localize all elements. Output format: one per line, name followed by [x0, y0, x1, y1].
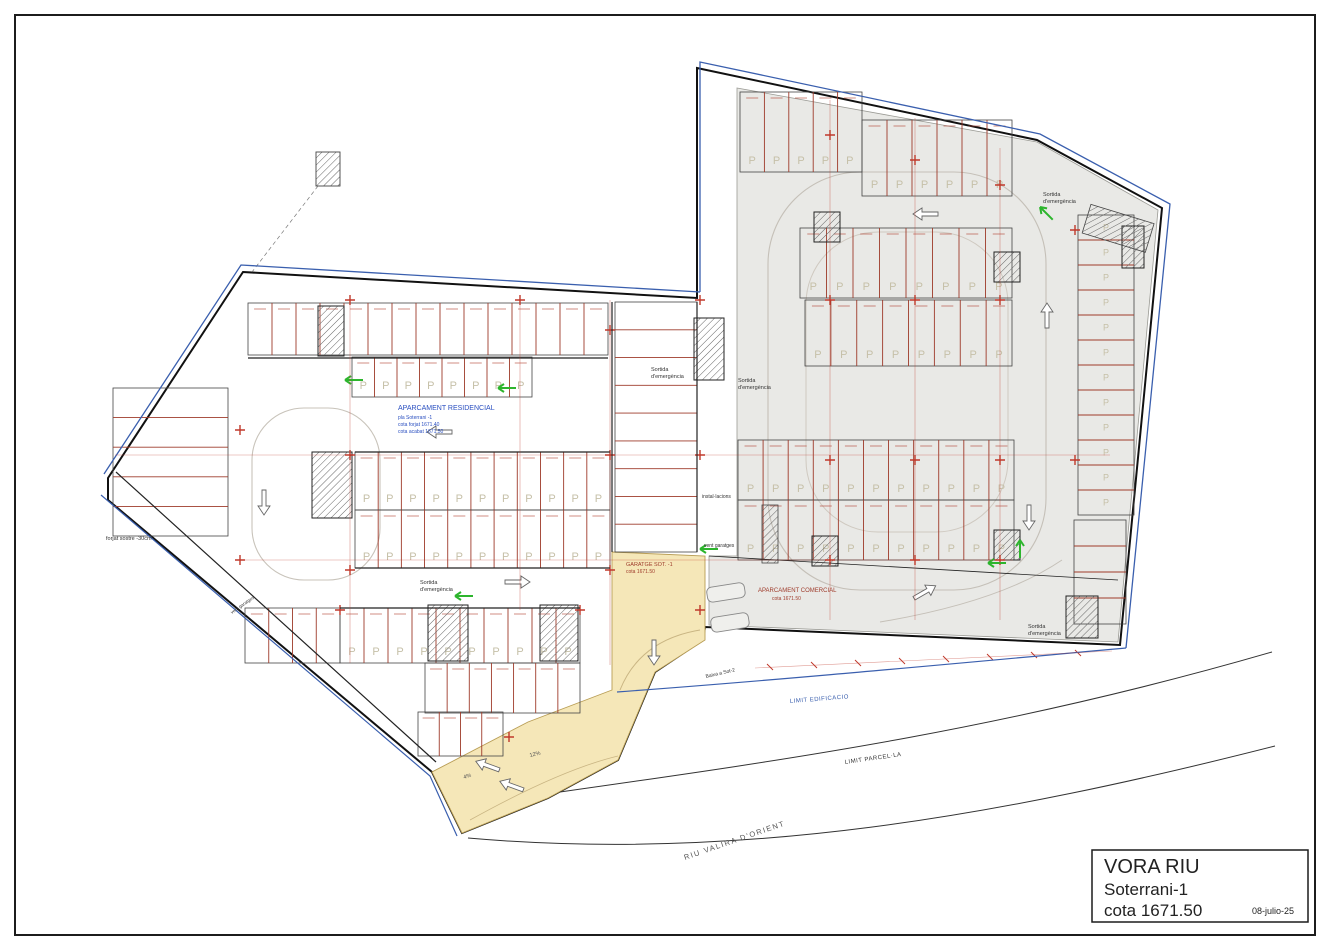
- emergency-exit-label: d'emergència: [651, 374, 685, 380]
- stall-p-marker: P: [517, 380, 524, 392]
- stall-p-marker: P: [946, 179, 953, 191]
- stall-p-marker: P: [749, 155, 756, 167]
- stall-p-marker: P: [1103, 473, 1109, 483]
- date-label: 08-julio-25: [1252, 906, 1294, 916]
- stall-p-marker: P: [897, 543, 904, 555]
- stair-core: [318, 306, 344, 356]
- stall-p-marker: P: [847, 543, 854, 555]
- garage-sub1: cota 1671.50: [626, 569, 655, 575]
- stall-p-marker: P: [348, 646, 355, 658]
- emergency-exit-label: Sortida: [420, 580, 438, 586]
- stall-p-marker: P: [548, 493, 555, 505]
- stall-p-marker: P: [973, 483, 980, 495]
- level-name: Soterrani-1: [1104, 880, 1188, 899]
- stall-p-marker: P: [872, 483, 879, 495]
- stair-core: [812, 536, 838, 566]
- building-limit-line: [617, 648, 1126, 692]
- stall-p-marker: P: [386, 551, 393, 563]
- stall-p-marker: P: [921, 179, 928, 191]
- stall-p-marker: P: [1103, 248, 1109, 258]
- stair-core: [694, 318, 724, 380]
- stall-p-marker: P: [1103, 398, 1109, 408]
- stall-p-marker: P: [427, 380, 434, 392]
- emergency-exit-label: Sortida: [1028, 624, 1046, 630]
- stall-p-marker: P: [810, 281, 817, 293]
- stall-p-marker: P: [846, 155, 853, 167]
- stall-p-marker: P: [892, 349, 899, 361]
- stall-p-marker: P: [822, 483, 829, 495]
- plan-sheet: PPPPPPPPPPPPPPPPPPPPPPPPPPPPPPPPPPPPPPPP…: [0, 0, 1330, 950]
- stall-p-marker: P: [948, 483, 955, 495]
- building-limit-label: LIMIT EDIFICACIO: [790, 694, 850, 705]
- stall-p-marker: P: [479, 493, 486, 505]
- stall-p-marker: P: [889, 281, 896, 293]
- stall-p-marker: P: [896, 179, 903, 191]
- stall-p-marker: P: [998, 483, 1005, 495]
- parcel-limit-curve: [560, 652, 1272, 792]
- stall-p-marker: P: [450, 380, 457, 392]
- stall-p-marker: P: [797, 155, 804, 167]
- stall-p-marker: P: [405, 380, 412, 392]
- stall-p-marker: P: [396, 646, 403, 658]
- residential-sub1: pla Soterrani -1: [398, 415, 432, 421]
- stall-p-marker: P: [872, 543, 879, 555]
- stall-p-marker: P: [973, 543, 980, 555]
- stall-p-marker: P: [1103, 448, 1109, 458]
- emergency-exit-label: d'emergència: [738, 385, 772, 391]
- stall-p-marker: P: [948, 543, 955, 555]
- stall-p-marker: P: [863, 281, 870, 293]
- stall-p-marker: P: [944, 349, 951, 361]
- emergency-exit-label: Sortida: [1043, 192, 1061, 198]
- stall-p-marker: P: [492, 646, 499, 658]
- stall-p-marker: P: [1103, 298, 1109, 308]
- stall-p-marker: P: [1103, 373, 1109, 383]
- stall-p-marker: P: [969, 281, 976, 293]
- stall-p-marker: P: [1103, 348, 1109, 358]
- stall-p-marker: P: [420, 646, 427, 658]
- stall-p-marker: P: [836, 281, 843, 293]
- commercial-sub1: cota 1671.50: [772, 596, 801, 602]
- stall-p-marker: P: [456, 493, 463, 505]
- project-name: VORA RIU: [1104, 856, 1200, 878]
- emergency-exit-label: d'emergència: [1043, 199, 1077, 205]
- stall-p-marker: P: [971, 179, 978, 191]
- stall-p-marker: P: [772, 483, 779, 495]
- stall-p-marker: P: [363, 493, 370, 505]
- stall-p-marker: P: [360, 380, 367, 392]
- emergency-exit-label: Sortida: [738, 378, 756, 384]
- stair-core: [428, 605, 468, 661]
- installations-label: instal·lacions: [702, 494, 731, 500]
- stall-p-marker: P: [572, 493, 579, 505]
- stall-p-marker: P: [595, 551, 602, 563]
- stall-p-marker: P: [409, 493, 416, 505]
- stall-p-marker: P: [923, 483, 930, 495]
- stair-core: [814, 212, 840, 242]
- stall-p-marker: P: [382, 380, 389, 392]
- emergency-exit-label: d'emergència: [1028, 631, 1062, 637]
- stall-p-marker: P: [525, 493, 532, 505]
- stall-p-marker: P: [386, 493, 393, 505]
- stall-p-marker: P: [942, 281, 949, 293]
- garage-title: GARATGE SOT. -1: [626, 562, 673, 568]
- commercial-title: APARCAMENT COMERCIAL: [758, 588, 837, 594]
- emergency-exit-label: d'emergència: [420, 587, 454, 593]
- stall-p-marker: P: [847, 483, 854, 495]
- stall-p-marker: P: [502, 493, 509, 505]
- residential-title: APARCAMENT RESIDENCIAL: [398, 405, 495, 412]
- stall-p-marker: P: [797, 483, 804, 495]
- river-label: RIU VALIRA D'ORIENT: [683, 819, 787, 862]
- stall-p-marker: P: [548, 551, 555, 563]
- emergency-exit-label: Sortida: [651, 367, 669, 373]
- stall-p-marker: P: [409, 551, 416, 563]
- elevation-label: cota 1671.50: [1104, 901, 1202, 920]
- stall-p-marker: P: [432, 551, 439, 563]
- stall-p-marker: P: [797, 543, 804, 555]
- stair-core: [312, 452, 352, 518]
- stall-p-marker: P: [479, 551, 486, 563]
- residential-sub2: cota forjat 1671.40: [398, 422, 440, 428]
- stall-p-marker: P: [918, 349, 925, 361]
- floor-note-label: forjat sostre -30cm: [106, 536, 152, 542]
- stair-core: [540, 605, 578, 661]
- ramp-down-label: Baixa a Sot-2: [705, 667, 736, 680]
- stall-p-marker: P: [995, 349, 1002, 361]
- stair-core: [1066, 596, 1098, 638]
- stall-p-marker: P: [747, 543, 754, 555]
- stall-p-marker: P: [1103, 498, 1109, 508]
- stall-p-marker: P: [897, 483, 904, 495]
- shaft-connector: [252, 186, 318, 272]
- stall-p-marker: P: [814, 349, 821, 361]
- stall-p-marker: P: [456, 551, 463, 563]
- stall-p-marker: P: [595, 493, 602, 505]
- stall-p-marker: P: [773, 155, 780, 167]
- stall-p-marker: P: [916, 281, 923, 293]
- stall-p-marker: P: [372, 646, 379, 658]
- stall-p-marker: P: [970, 349, 977, 361]
- stall-p-marker: P: [1103, 273, 1109, 283]
- stall-p-marker: P: [572, 551, 579, 563]
- stall-p-marker: P: [502, 551, 509, 563]
- stall-p-marker: P: [468, 646, 475, 658]
- stall-p-marker: P: [995, 281, 1002, 293]
- stall-p-marker: P: [525, 551, 532, 563]
- hatched-wall: [762, 505, 778, 563]
- shaft-above: [316, 152, 340, 186]
- stall-p-marker: P: [866, 349, 873, 361]
- floor-plan-svg: PPPPPPPPPPPPPPPPPPPPPPPPPPPPPPPPPPPPPPPP…: [0, 0, 1330, 950]
- stair-core: [994, 252, 1020, 282]
- garage-vent-label: vent garatges: [704, 543, 735, 549]
- stall-p-marker: P: [1103, 323, 1109, 333]
- stall-p-marker: P: [871, 179, 878, 191]
- stall-p-marker: P: [516, 646, 523, 658]
- stall-p-marker: P: [432, 493, 439, 505]
- title-block: VORA RIU Soterrani-1 cota 1671.50 08-jul…: [1092, 850, 1308, 922]
- stall-p-marker: P: [822, 155, 829, 167]
- residential-sub3: cota acabat 1671.50: [398, 429, 444, 435]
- stall-p-marker: P: [472, 380, 479, 392]
- stall-p-marker: P: [923, 543, 930, 555]
- stall-p-marker: P: [363, 551, 370, 563]
- stall-p-marker: P: [747, 483, 754, 495]
- stall-p-marker: P: [1103, 423, 1109, 433]
- stall-p-marker: P: [840, 349, 847, 361]
- parcel-limit-label: LIMIT PARCEL·LA: [844, 752, 902, 766]
